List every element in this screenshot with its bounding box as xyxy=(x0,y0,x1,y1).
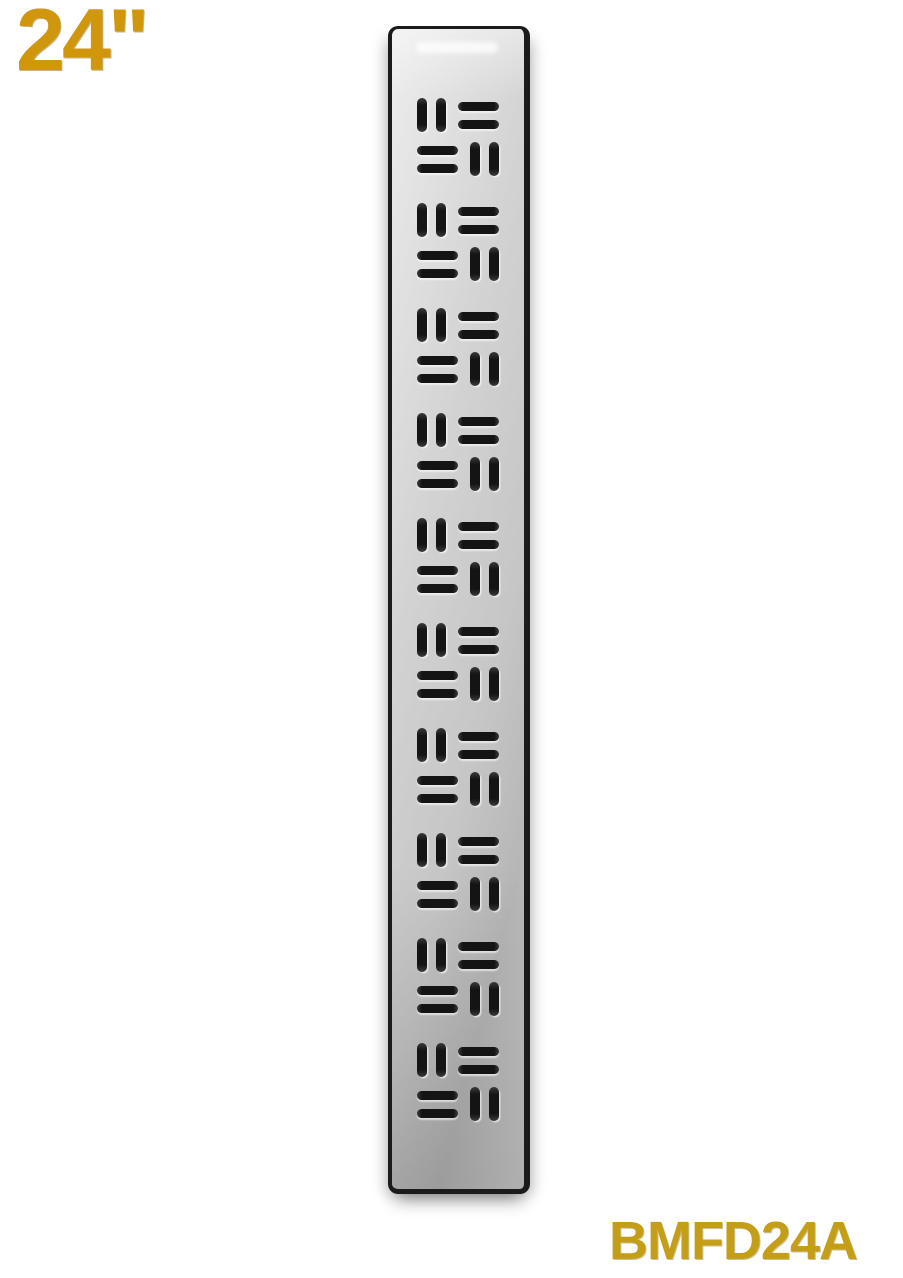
vertical-slot xyxy=(436,203,446,237)
vertical-slot xyxy=(417,623,427,657)
vertical-slot xyxy=(417,308,427,342)
horizontal-slot-pair xyxy=(417,251,458,278)
horizontal-slot xyxy=(458,312,499,321)
horizontal-slot-pair xyxy=(458,1047,499,1074)
product-photo: 24" xyxy=(0,0,903,1278)
horizontal-slot xyxy=(458,417,499,426)
vertical-slot xyxy=(436,518,446,552)
vertical-slot xyxy=(470,562,480,596)
vertical-slot xyxy=(436,623,446,657)
vertical-slot xyxy=(436,1043,446,1077)
horizontal-slot xyxy=(417,479,458,488)
vertical-slot xyxy=(417,1043,427,1077)
slot-row xyxy=(417,562,499,596)
vertical-slot-pair xyxy=(470,457,499,491)
vertical-slot-pair xyxy=(417,308,446,342)
horizontal-slot-pair xyxy=(458,732,499,759)
horizontal-slot xyxy=(458,960,499,969)
slot-group xyxy=(417,203,499,281)
vertical-slot xyxy=(470,247,480,281)
vertical-slot-pair xyxy=(470,352,499,386)
vertical-slot-pair xyxy=(417,203,446,237)
horizontal-slot xyxy=(417,461,458,470)
vertical-slot xyxy=(470,142,480,176)
slot-group xyxy=(417,518,499,596)
slot-row xyxy=(417,623,499,657)
horizontal-slot-pair xyxy=(417,986,458,1013)
vertical-slot xyxy=(417,413,427,447)
horizontal-slot xyxy=(458,942,499,951)
vertical-slot xyxy=(470,772,480,806)
horizontal-slot xyxy=(417,986,458,995)
horizontal-slot xyxy=(458,645,499,654)
vertical-slot xyxy=(489,1087,499,1121)
horizontal-slot xyxy=(458,627,499,636)
horizontal-slot xyxy=(417,251,458,260)
slot-group xyxy=(417,98,499,176)
vertical-slot xyxy=(489,667,499,701)
slot-row xyxy=(417,982,499,1016)
horizontal-slot-pair xyxy=(458,627,499,654)
vertical-slot xyxy=(470,352,480,386)
horizontal-slot xyxy=(458,102,499,111)
vertical-slot xyxy=(489,982,499,1016)
vertical-slot-pair xyxy=(470,877,499,911)
slot-group xyxy=(417,308,499,386)
slot-row xyxy=(417,413,499,447)
vertical-slot xyxy=(470,667,480,701)
horizontal-slot xyxy=(417,356,458,365)
horizontal-slot xyxy=(417,584,458,593)
horizontal-slot xyxy=(417,881,458,890)
vertical-slot-pair xyxy=(417,1043,446,1077)
horizontal-slot xyxy=(417,1004,458,1013)
slot-group xyxy=(417,413,499,491)
vertical-slot xyxy=(417,203,427,237)
grate-pattern xyxy=(392,29,524,1121)
vertical-slot xyxy=(436,833,446,867)
horizontal-slot xyxy=(458,225,499,234)
horizontal-slot-pair xyxy=(458,417,499,444)
horizontal-slot xyxy=(458,750,499,759)
slot-row xyxy=(417,938,499,972)
horizontal-slot-pair xyxy=(458,102,499,129)
horizontal-slot-pair xyxy=(458,312,499,339)
slot-row xyxy=(417,352,499,386)
slot-row xyxy=(417,1043,499,1077)
slot-group xyxy=(417,623,499,701)
vertical-slot xyxy=(470,1087,480,1121)
vertical-slot xyxy=(470,457,480,491)
horizontal-slot-pair xyxy=(458,837,499,864)
vertical-slot-pair xyxy=(470,562,499,596)
vertical-slot-pair xyxy=(417,728,446,762)
slot-row xyxy=(417,877,499,911)
vertical-slot-pair xyxy=(470,247,499,281)
horizontal-slot xyxy=(417,374,458,383)
horizontal-slot xyxy=(458,522,499,531)
horizontal-slot xyxy=(458,1047,499,1056)
slot-group xyxy=(417,833,499,911)
vertical-slot-pair xyxy=(417,518,446,552)
model-number: BMFD24A xyxy=(609,1210,857,1272)
horizontal-slot xyxy=(458,855,499,864)
vertical-slot xyxy=(489,457,499,491)
horizontal-slot-pair xyxy=(417,881,458,908)
vertical-slot-pair xyxy=(470,142,499,176)
slot-row xyxy=(417,728,499,762)
horizontal-slot xyxy=(417,899,458,908)
slot-row xyxy=(417,142,499,176)
slot-row xyxy=(417,98,499,132)
vertical-slot-pair xyxy=(417,938,446,972)
horizontal-slot xyxy=(417,164,458,173)
vertical-slot-pair xyxy=(470,982,499,1016)
horizontal-slot xyxy=(458,207,499,216)
horizontal-slot-pair xyxy=(417,356,458,383)
slot-row xyxy=(417,772,499,806)
horizontal-slot xyxy=(458,330,499,339)
vertical-slot xyxy=(436,308,446,342)
vertical-slot xyxy=(417,728,427,762)
vertical-slot xyxy=(417,833,427,867)
vertical-slot-pair xyxy=(417,623,446,657)
slot-row xyxy=(417,667,499,701)
vertical-slot-pair xyxy=(417,413,446,447)
slot-row xyxy=(417,308,499,342)
horizontal-slot xyxy=(458,435,499,444)
vertical-slot xyxy=(436,728,446,762)
horizontal-slot xyxy=(417,269,458,278)
horizontal-slot xyxy=(417,566,458,575)
vertical-slot xyxy=(417,518,427,552)
slot-row xyxy=(417,457,499,491)
vertical-slot xyxy=(470,877,480,911)
slot-group xyxy=(417,1043,499,1121)
horizontal-slot xyxy=(417,689,458,698)
vertical-slot-pair xyxy=(417,833,446,867)
vertical-slot xyxy=(489,772,499,806)
horizontal-slot xyxy=(417,146,458,155)
vertical-slot xyxy=(417,938,427,972)
vertical-slot xyxy=(489,562,499,596)
horizontal-slot xyxy=(417,671,458,680)
horizontal-slot xyxy=(417,1109,458,1118)
vertical-slot-pair xyxy=(470,772,499,806)
slot-row xyxy=(417,203,499,237)
horizontal-slot-pair xyxy=(458,942,499,969)
horizontal-slot-pair xyxy=(417,146,458,173)
slot-group xyxy=(417,938,499,1016)
slot-row xyxy=(417,833,499,867)
vertical-slot-pair xyxy=(470,1087,499,1121)
vertical-slot xyxy=(489,247,499,281)
slot-row xyxy=(417,247,499,281)
horizontal-slot xyxy=(458,120,499,129)
horizontal-slot xyxy=(458,837,499,846)
horizontal-slot-pair xyxy=(417,1091,458,1118)
vertical-slot xyxy=(489,142,499,176)
horizontal-slot xyxy=(458,540,499,549)
slot-group xyxy=(417,728,499,806)
slot-row xyxy=(417,1087,499,1121)
horizontal-slot xyxy=(417,1091,458,1100)
horizontal-slot xyxy=(458,1065,499,1074)
size-label: 24" xyxy=(16,0,147,86)
horizontal-slot-pair xyxy=(417,671,458,698)
horizontal-slot xyxy=(417,794,458,803)
horizontal-slot xyxy=(458,732,499,741)
horizontal-slot-pair xyxy=(458,522,499,549)
vertical-slot-pair xyxy=(417,98,446,132)
vertical-slot xyxy=(436,938,446,972)
vertical-slot xyxy=(489,352,499,386)
vertical-slot xyxy=(489,877,499,911)
vertical-slot-pair xyxy=(470,667,499,701)
vertical-slot xyxy=(417,98,427,132)
drain-grate xyxy=(388,26,530,1194)
horizontal-slot-pair xyxy=(417,566,458,593)
vertical-slot xyxy=(470,982,480,1016)
horizontal-slot-pair xyxy=(458,207,499,234)
horizontal-slot xyxy=(417,776,458,785)
vertical-slot xyxy=(436,413,446,447)
slot-row xyxy=(417,518,499,552)
horizontal-slot-pair xyxy=(417,461,458,488)
horizontal-slot-pair xyxy=(417,776,458,803)
vertical-slot xyxy=(436,98,446,132)
